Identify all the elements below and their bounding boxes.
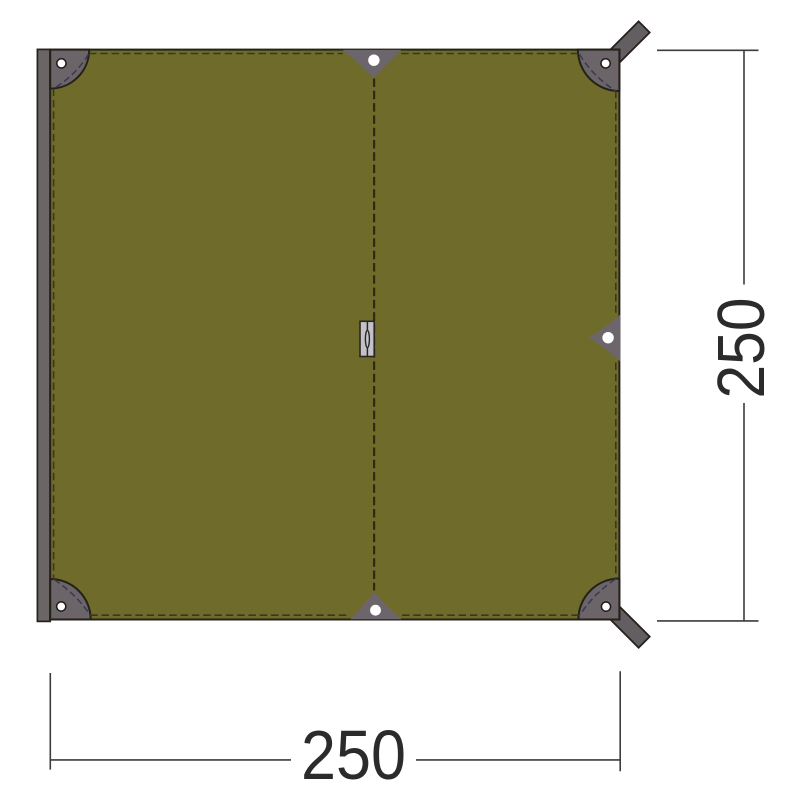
svg-text:250: 250 [704,298,779,399]
svg-text:250: 250 [301,716,406,794]
